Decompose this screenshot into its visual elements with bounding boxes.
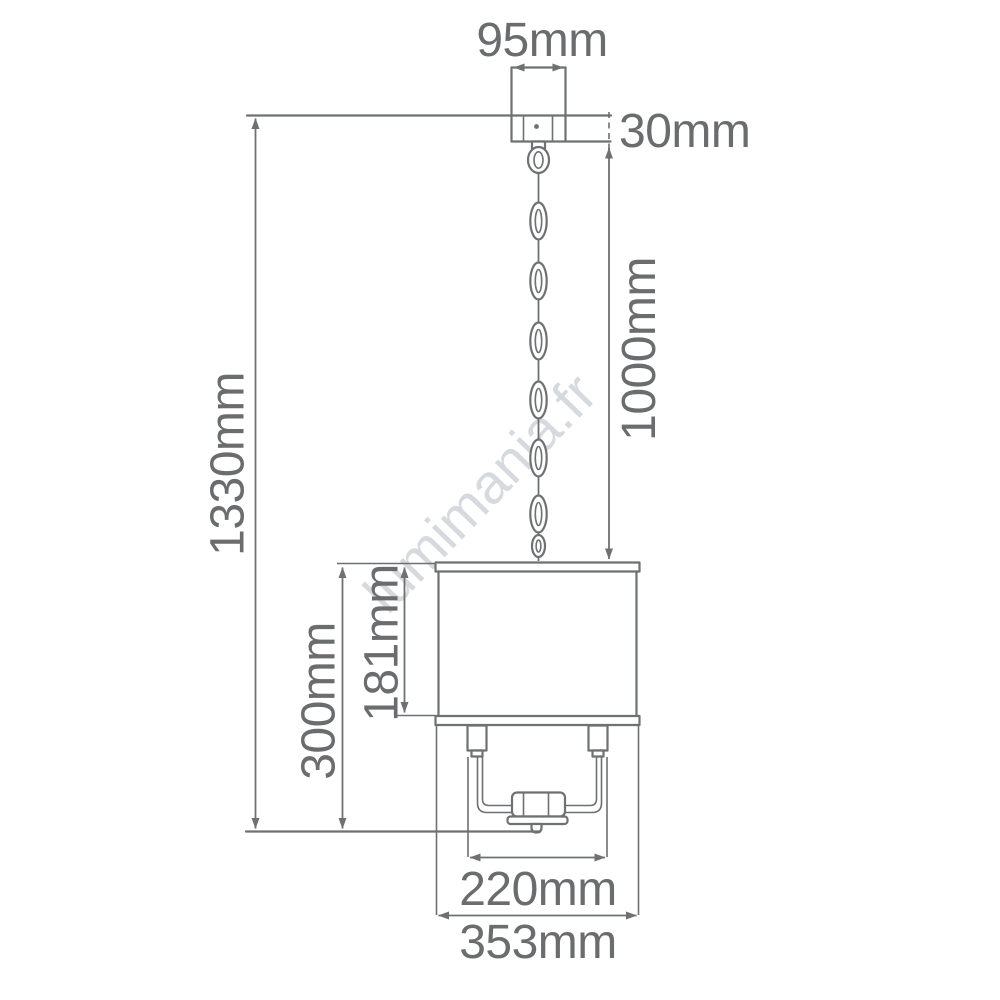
lamp-shade — [436, 563, 640, 726]
dimension-canopy-width: 95mm — [476, 14, 607, 68]
chain — [530, 172, 546, 561]
canopy-height-label: 30mm — [619, 105, 750, 158]
chain-link — [530, 382, 546, 419]
shade-height-label: 181mm — [356, 564, 409, 722]
chain-link — [530, 203, 546, 240]
right-socket — [589, 726, 608, 751]
hanging-hook — [528, 142, 549, 174]
diagram-page: lumimania.fr — [0, 0, 1000, 1000]
overall-height-label: 1330mm — [202, 372, 255, 556]
pendant-lamp-dimension-drawing: lumimania.fr — [0, 0, 1000, 1000]
shade-width-label: 353mm — [459, 916, 617, 969]
chain-length-label: 1000mm — [613, 257, 666, 441]
chain-link — [530, 440, 546, 477]
canopy-width-label: 95mm — [476, 14, 607, 67]
chain-link — [532, 535, 545, 557]
canopy-screw-dot — [534, 124, 539, 129]
left-socket — [468, 726, 487, 751]
body-height-label: 300mm — [293, 622, 346, 780]
candle-frame — [468, 726, 608, 833]
center-hub — [512, 793, 565, 817]
inner-width-label: 220mm — [459, 863, 617, 916]
canopy — [512, 68, 611, 142]
dimension-canopy-height: 30mm — [609, 105, 750, 159]
dimension-shade-width: 353mm — [437, 726, 639, 970]
chain-link — [530, 496, 546, 533]
dimension-chain-length: 1000mm — [609, 148, 666, 559]
chain-link — [530, 323, 546, 360]
chain-link — [530, 263, 546, 300]
dimension-overall-height: 1330mm — [202, 119, 256, 829]
